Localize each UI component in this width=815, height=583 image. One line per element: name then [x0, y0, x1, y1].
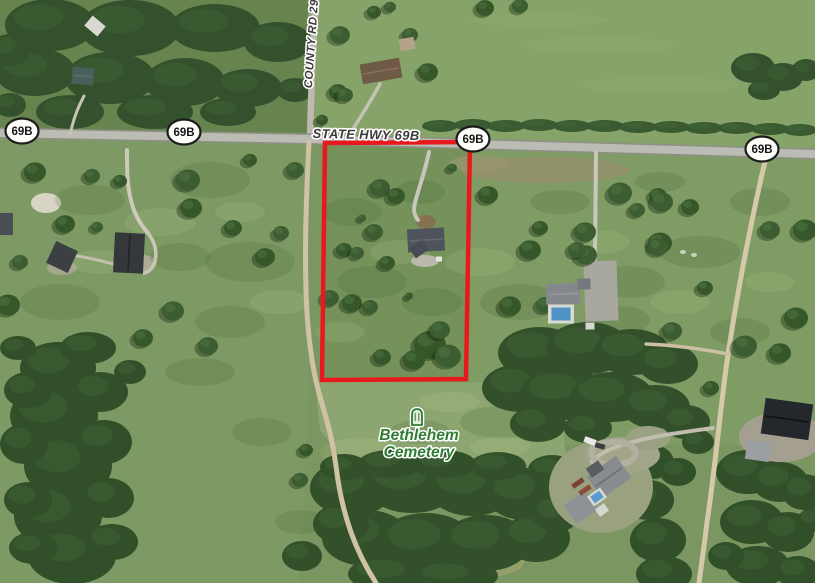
ground-patch [580, 77, 740, 93]
ground-patch [520, 37, 680, 53]
building [586, 323, 595, 330]
ground-patch [660, 236, 740, 268]
ground-patch [232, 418, 292, 446]
building [436, 257, 442, 262]
ground-patch [322, 198, 382, 226]
highway-shield-69b: 69B [168, 120, 201, 145]
cemetery-label: Cemetery [384, 444, 456, 461]
shield-label: 69B [751, 144, 772, 156]
ground-patch [416, 215, 436, 229]
ground-patch [250, 290, 310, 314]
ground-patch [20, 284, 100, 320]
shield-label: 69B [11, 126, 32, 138]
ground-patch [165, 358, 235, 386]
building [0, 213, 13, 235]
ground-patch [450, 155, 510, 171]
ground-patch [215, 202, 265, 222]
tombstone-icon [412, 409, 422, 425]
road-east-driveway [595, 153, 596, 259]
satellite-map-view[interactable]: 69B69B69B69BSTATE HWY 69BCOUNTY RD 29Bet… [0, 0, 815, 583]
shield-label: 69B [462, 134, 483, 146]
ground-patch [470, 13, 610, 27]
ground-patch [150, 243, 210, 271]
building [546, 283, 581, 305]
cemetery-label: Bethlehem [379, 427, 458, 444]
satellite-map[interactable]: 69B69B69B69BSTATE HWY 69BCOUNTY RD 29Bet… [0, 0, 815, 583]
parking-pad [583, 260, 618, 321]
building [761, 398, 814, 440]
ground-patch [402, 288, 462, 316]
highway-shield-69b: 69B [457, 127, 490, 152]
building [745, 440, 771, 462]
road-label: STATE HWY 69B [312, 126, 419, 143]
ground-patch [530, 190, 590, 214]
ground-patch [55, 185, 125, 215]
building [552, 308, 571, 321]
building [577, 278, 590, 289]
ground-patch [445, 248, 515, 276]
highway-shield-69b: 69B [746, 137, 779, 162]
building [113, 232, 145, 274]
building [71, 67, 94, 86]
ground-patch [337, 266, 407, 298]
ground-patch [195, 306, 265, 338]
ground-patch [205, 242, 295, 282]
highway-shield-69b: 69B [6, 119, 39, 144]
ground-patch [745, 272, 795, 292]
shield-label: 69B [173, 127, 194, 139]
ground-patch [420, 392, 480, 412]
building [399, 37, 416, 51]
